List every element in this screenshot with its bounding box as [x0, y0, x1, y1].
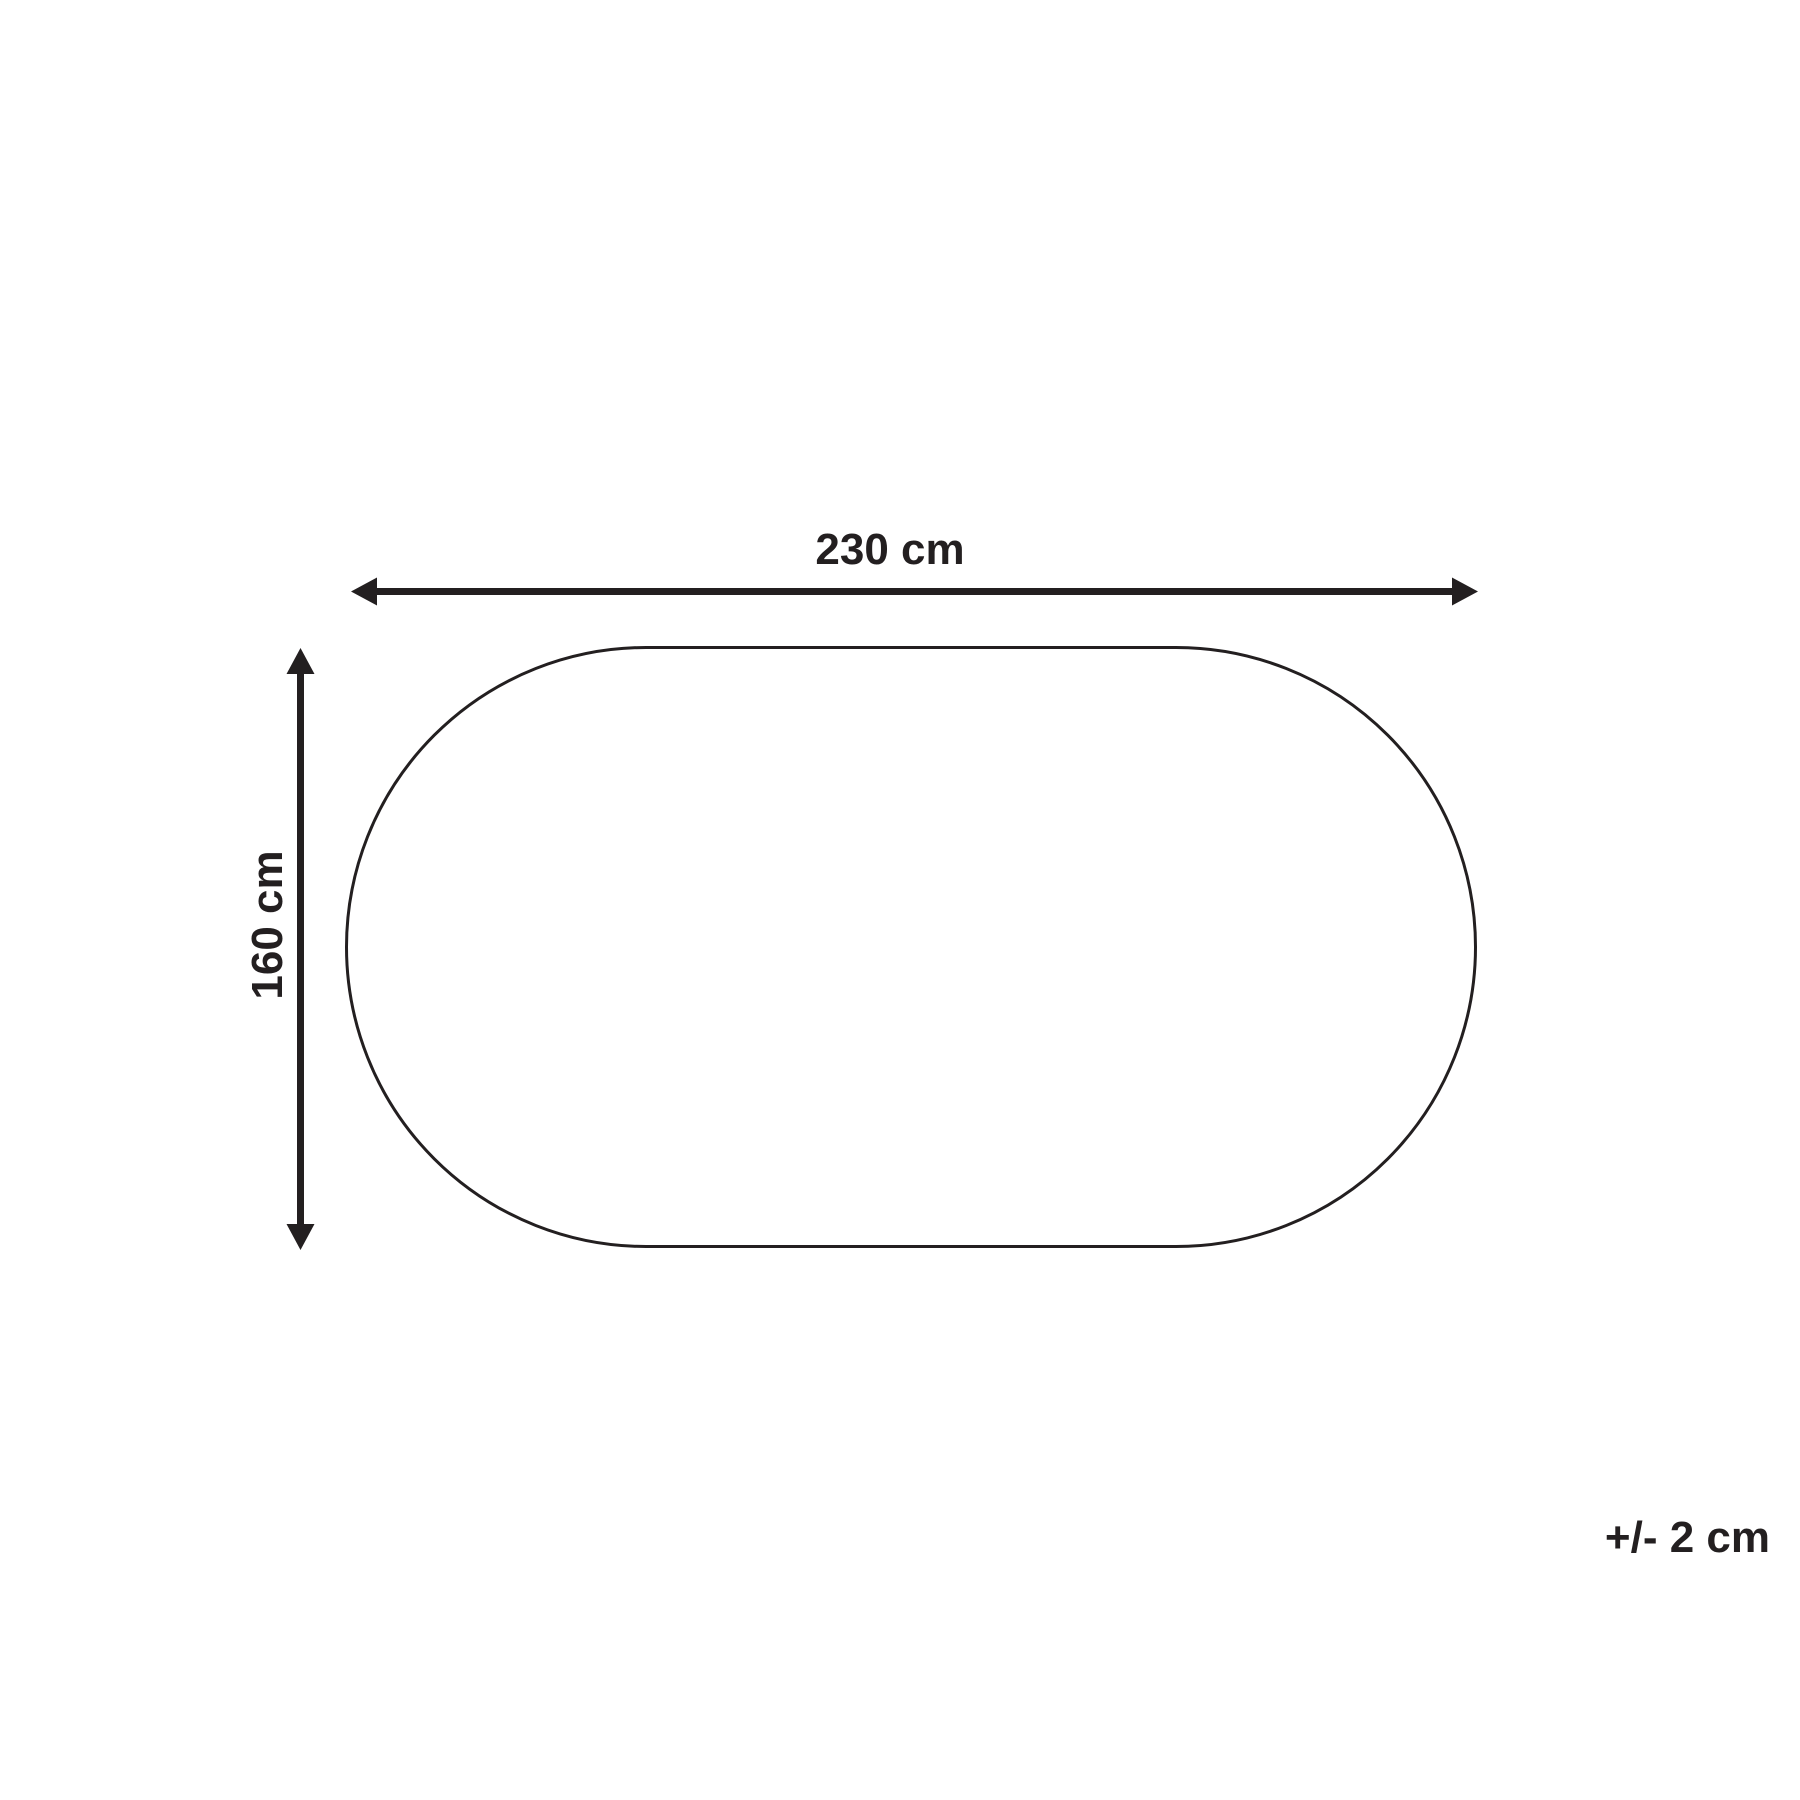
width-arrow-right-head-icon [1452, 578, 1478, 606]
dimension-diagram: 230 cm 160 cm +/- 2 cm [0, 0, 1800, 1800]
tolerance-label: +/- 2 cm [1370, 1516, 1770, 1560]
height-dimension-label: 160 cm [246, 725, 290, 1125]
width-arrow-left-head-icon [351, 578, 377, 606]
height-arrow-top-head-icon [287, 648, 315, 674]
width-dimension-arrow-icon [351, 578, 1478, 606]
height-arrow-bottom-head-icon [287, 1224, 315, 1250]
width-dimension-label: 230 cm [690, 528, 1090, 572]
product-outline-shape [347, 648, 1476, 1247]
